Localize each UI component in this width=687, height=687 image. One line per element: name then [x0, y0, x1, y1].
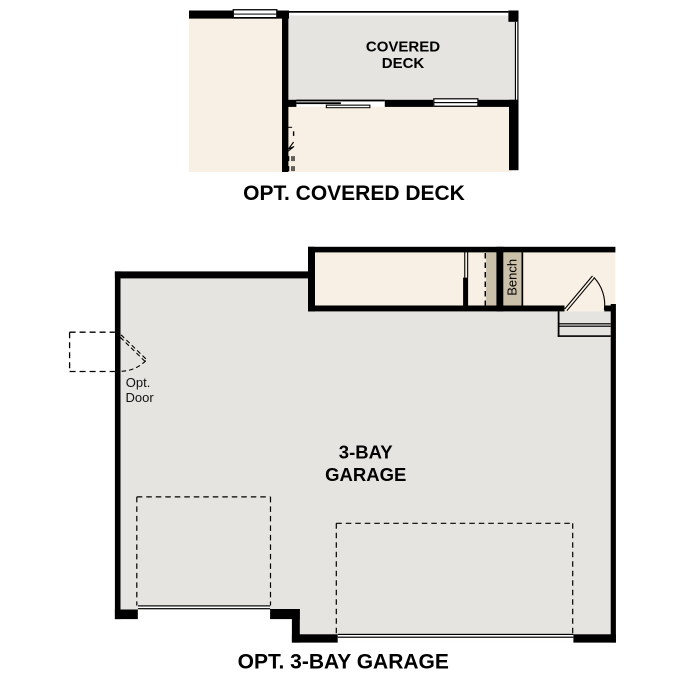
- svg-text:GARAGE: GARAGE: [325, 464, 406, 485]
- svg-text:Door: Door: [126, 390, 155, 405]
- svg-text:COVERED: COVERED: [366, 39, 440, 56]
- svg-text:3-BAY: 3-BAY: [339, 441, 393, 462]
- svg-text:OPT. COVERED DECK: OPT. COVERED DECK: [243, 182, 465, 205]
- svg-text:OPT. 3-BAY GARAGE: OPT. 3-BAY GARAGE: [238, 650, 449, 673]
- svg-text:Bench: Bench: [505, 259, 520, 296]
- svg-text:Opt.: Opt.: [126, 375, 151, 390]
- svg-text:DECK: DECK: [382, 55, 425, 72]
